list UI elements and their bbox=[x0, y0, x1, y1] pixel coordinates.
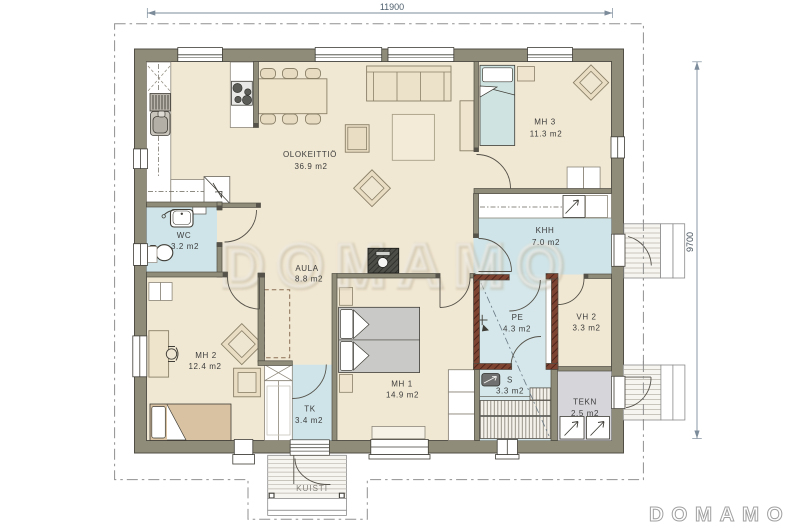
svg-text:OLOKEITTIÖ: OLOKEITTIÖ bbox=[283, 150, 337, 159]
svg-text:MH 1: MH 1 bbox=[391, 380, 413, 389]
svg-text:S: S bbox=[507, 376, 513, 385]
svg-text:3.4 m2: 3.4 m2 bbox=[295, 416, 323, 425]
svg-text:TEKN: TEKN bbox=[573, 398, 597, 407]
svg-text:MH 3: MH 3 bbox=[534, 118, 556, 127]
svg-text:3.3 m2: 3.3 m2 bbox=[496, 387, 524, 396]
svg-text:KHH: KHH bbox=[536, 226, 555, 235]
svg-text:4.3 m2: 4.3 m2 bbox=[503, 325, 531, 334]
svg-text:KUISTI: KUISTI bbox=[296, 484, 328, 493]
svg-text:VH 2: VH 2 bbox=[576, 313, 596, 322]
svg-text:8.8 m2: 8.8 m2 bbox=[295, 275, 323, 284]
svg-text:WC: WC bbox=[177, 231, 192, 240]
svg-text:AULA: AULA bbox=[295, 264, 318, 273]
svg-text:36.9 m2: 36.9 m2 bbox=[294, 162, 327, 171]
svg-text:3.3 m2: 3.3 m2 bbox=[572, 324, 600, 333]
svg-text:14.9 m2: 14.9 m2 bbox=[386, 391, 419, 400]
svg-text:9700: 9700 bbox=[685, 232, 695, 252]
svg-text:12.4 m2: 12.4 m2 bbox=[188, 362, 221, 371]
svg-text:MH 2: MH 2 bbox=[195, 351, 217, 360]
svg-text:TK: TK bbox=[304, 405, 315, 414]
svg-text:DOMAMO: DOMAMO bbox=[649, 503, 790, 526]
svg-text:2.5 m2: 2.5 m2 bbox=[571, 409, 599, 418]
svg-text:PE: PE bbox=[512, 313, 524, 322]
svg-text:11900: 11900 bbox=[380, 2, 404, 12]
svg-text:11.3 m2: 11.3 m2 bbox=[530, 130, 563, 139]
svg-text:7.0 m2: 7.0 m2 bbox=[532, 238, 560, 247]
svg-text:3.2 m2: 3.2 m2 bbox=[171, 242, 199, 251]
